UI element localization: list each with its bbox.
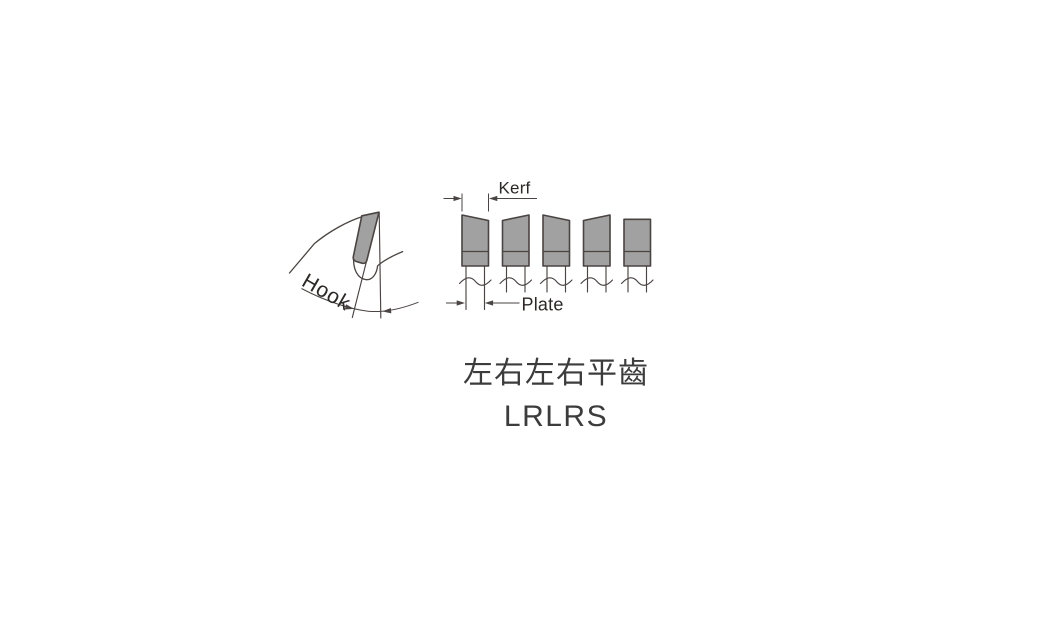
hook-angle-view: Hook [290, 212, 419, 318]
plate-break-wave [500, 278, 532, 286]
carbide-tip-side [353, 212, 379, 263]
tooth-tip-block [624, 219, 651, 266]
plate-sides [628, 266, 647, 292]
plate-sides [466, 266, 485, 310]
blade-back-curve [290, 217, 363, 274]
tooth-tip-block [462, 215, 489, 266]
plate-sides [507, 266, 526, 292]
plate-break-wave [622, 278, 654, 286]
tooth-1-L [460, 215, 492, 310]
tooth-2-R [500, 215, 532, 292]
plate-label: Plate [522, 295, 564, 315]
hook-angle-label: Hook [298, 269, 355, 315]
tooth-tip-block [584, 215, 611, 266]
caption-block: 左右左右平齒 LRLRS [463, 358, 649, 433]
plate-dimension: Plate [446, 295, 564, 315]
plate-break-wave [541, 278, 573, 286]
plate-sides [588, 266, 607, 292]
radial-reference-line [379, 213, 381, 319]
grind-name-zh: 左右左右平齒 [463, 358, 649, 390]
kerf-right-arrowhead [489, 196, 497, 201]
grind-code: LRLRS [463, 401, 649, 433]
saw-tooth-grind-diagram: Hook Kerf Plate [0, 0, 1043, 641]
plate-sides [547, 266, 566, 292]
figure-canvas: Hook Kerf Plate 左右左右平齒 LRLRS [0, 0, 1043, 641]
plate-break-wave [581, 278, 613, 286]
tooth-3-L [541, 215, 573, 292]
plate-break-wave [460, 278, 492, 286]
tooth-tip-block [503, 215, 530, 266]
plate-right-arrowhead [485, 300, 493, 305]
kerf-extension-lines [462, 194, 489, 212]
tooth-5-S [622, 219, 654, 292]
kerf-label: Kerf [499, 179, 531, 198]
kerf-left-arrowhead [454, 196, 462, 201]
tooth-tip-block [543, 215, 570, 266]
kerf-dimension: Kerf [444, 179, 538, 212]
plate-left-arrowhead [457, 300, 465, 305]
tooth-4-R [581, 215, 613, 292]
